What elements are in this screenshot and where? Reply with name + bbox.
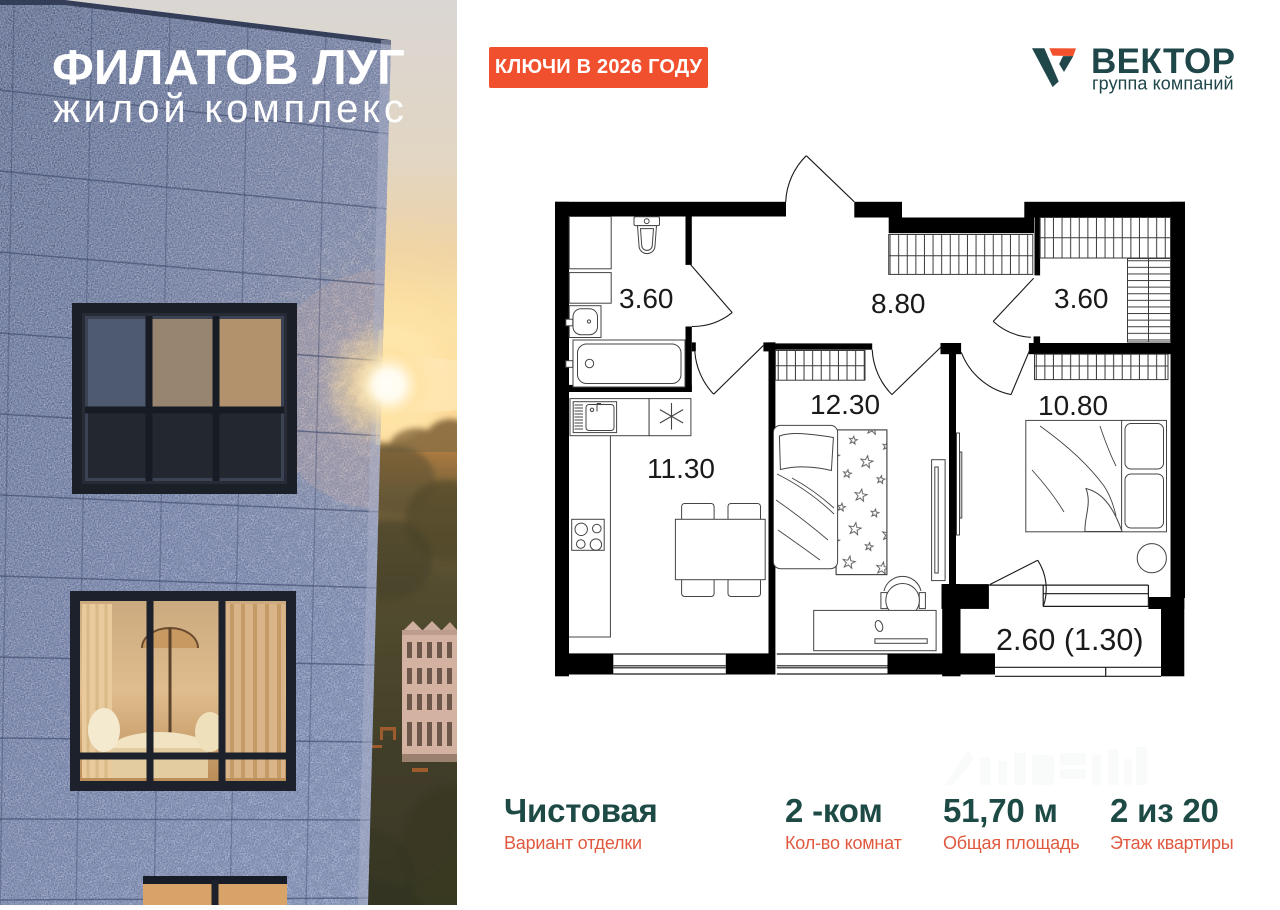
svg-text:12.30: 12.30 — [810, 389, 880, 420]
svg-text:3.60: 3.60 — [1054, 283, 1109, 314]
svg-text:2.60 (1.30): 2.60 (1.30) — [996, 623, 1144, 657]
svg-text:группа компаний: группа компаний — [1092, 74, 1234, 94]
svg-text:3.60: 3.60 — [619, 283, 674, 314]
svg-text:8.80: 8.80 — [871, 288, 926, 319]
svg-text:11.30: 11.30 — [647, 453, 715, 484]
svg-text:10.80: 10.80 — [1038, 390, 1108, 421]
